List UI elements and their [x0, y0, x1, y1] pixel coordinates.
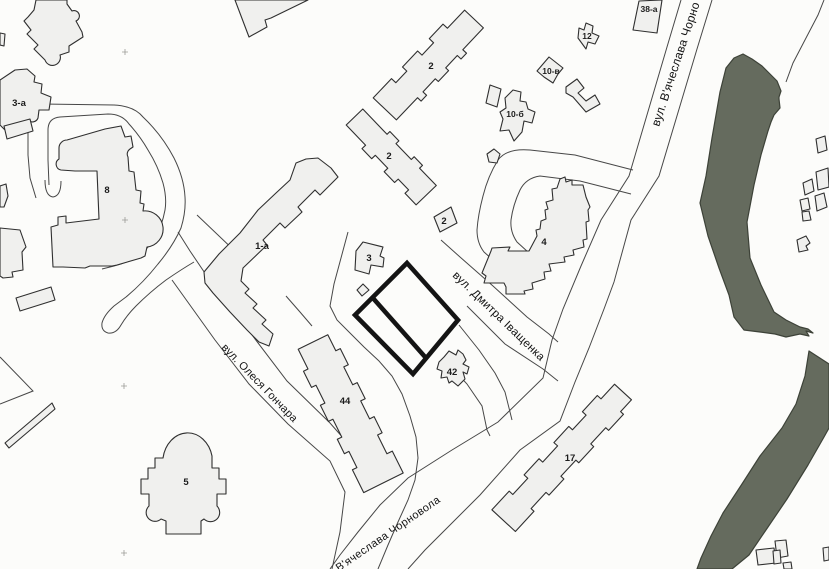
svg-text:5: 5 [183, 477, 189, 488]
svg-text:42: 42 [447, 367, 458, 378]
svg-text:2: 2 [428, 61, 433, 72]
svg-text:2: 2 [386, 151, 391, 162]
svg-text:2: 2 [441, 216, 446, 227]
svg-text:38-а: 38-а [640, 4, 657, 14]
svg-text:4: 4 [541, 237, 547, 248]
svg-text:17: 17 [565, 453, 576, 464]
svg-text:1-а: 1-а [255, 241, 269, 252]
svg-text:12: 12 [582, 31, 592, 41]
svg-text:44: 44 [340, 396, 351, 407]
svg-text:3: 3 [366, 253, 371, 264]
svg-text:3-а: 3-а [12, 98, 26, 109]
svg-text:8: 8 [104, 185, 109, 196]
svg-text:10-б: 10-б [506, 109, 524, 119]
svg-text:10-в: 10-в [542, 66, 560, 76]
